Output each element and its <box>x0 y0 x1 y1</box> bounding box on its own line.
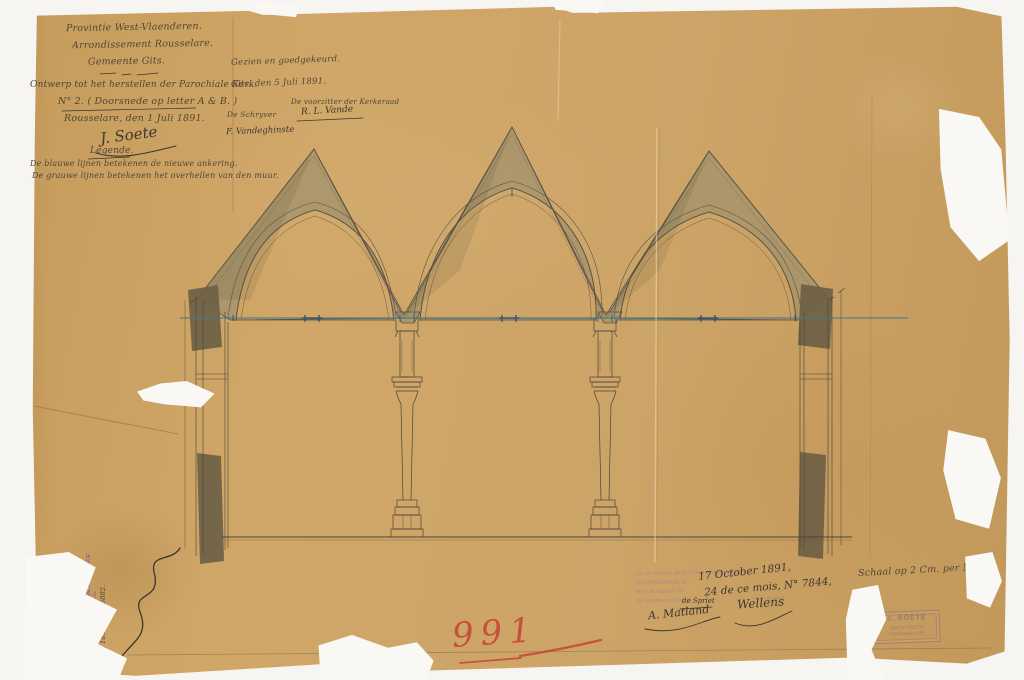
project-title: Ontwerp tot het herstellen der Parochial… <box>30 80 258 90</box>
gable-right <box>606 151 827 320</box>
legend-heading: Legende. <box>90 146 134 156</box>
column-left <box>391 318 423 537</box>
place-date-line: Rousselare, den 1 Juli 1891. <box>64 113 205 124</box>
gemeente-line: Gemeente Gits. <box>88 55 165 67</box>
scanned-drawing-page: Provintie West-Vlaenderen. Arrondissemen… <box>0 0 1024 680</box>
column-right <box>589 318 621 537</box>
inventory-number: 991 <box>451 610 539 656</box>
legend-grey-line: De grauwe lijnen betekenen het overhelle… <box>32 171 279 180</box>
wall-left <box>185 285 228 564</box>
legend-blue-line: De blauwe lijnen betekenen de nieuwe ank… <box>30 159 238 168</box>
secretary-title: De Schryver <box>227 110 276 119</box>
wall-right <box>798 284 845 559</box>
sheet-number: N° 2. ( Doorsnede op letter A & B. ) <box>58 96 237 107</box>
